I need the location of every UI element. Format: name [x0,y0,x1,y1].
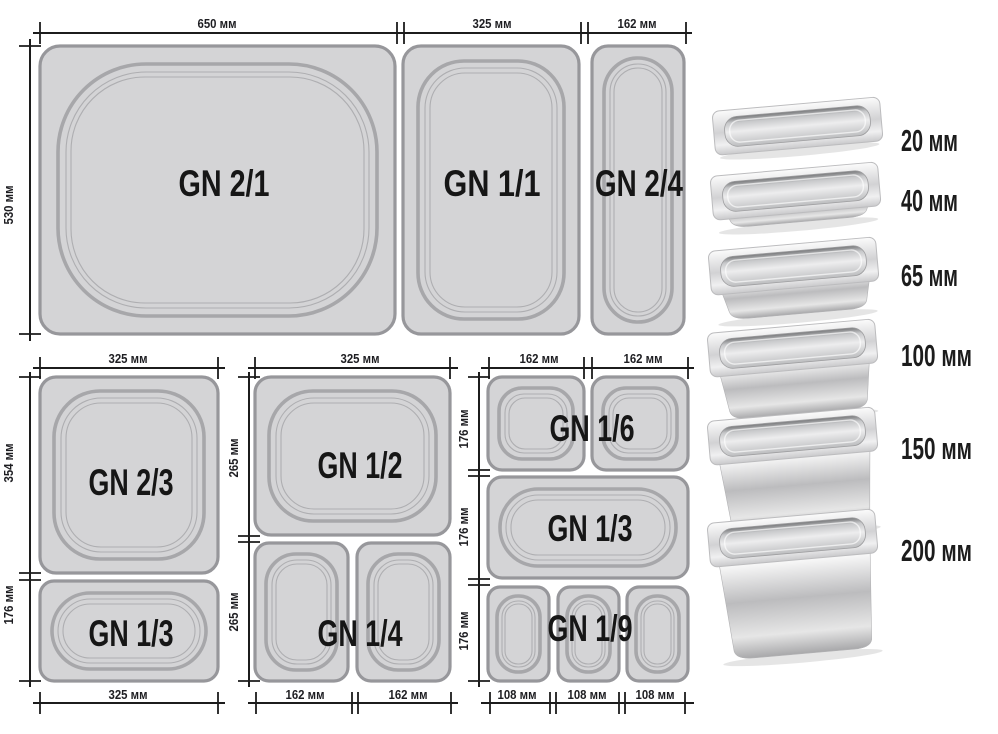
dim-label-325-bl-bottom: 325 мм [109,687,148,702]
pan-gn-2-1: GN 2/1 [40,46,395,334]
depth-label-40mm: 40 мм [901,183,958,218]
pan-gn-1-3-right: GN 1/3 [488,477,688,578]
depth-label-100mm: 100 мм [901,338,972,373]
dim-label-162-r-left: 162 мм [520,351,559,366]
dim-label-530: 530 мм [1,186,16,225]
pan-gn-1-9-a [488,587,549,681]
pan-gn-1-4-left [255,543,348,681]
pan-label-gn-2-4: GN 2/4 [595,163,683,204]
depth-label-200mm: 200 мм [901,533,972,568]
pan-gn-1-2: GN 1/2 [255,377,450,535]
dim-label-265-upper: 265 мм [226,439,241,478]
pan-label-gn-1-1: GN 1/1 [444,163,541,204]
dim-label-325-top: 325 мм [473,16,512,31]
dim-label-176-bl: 176 мм [1,586,16,625]
pan-photo-200mm [707,509,887,670]
dim-label-176-r2: 176 мм [456,508,471,547]
dim-label-108-c: 108 мм [636,687,675,702]
pan-label-gn-1-4: GN 1/4 [318,613,403,654]
pan-label-gn-1-3-left: GN 1/3 [89,613,174,654]
pan-label-gn-1-6: GN 1/6 [550,408,635,449]
dim-label-325-bl-top: 325 мм [109,351,148,366]
pan-gn-1-4-right [357,543,450,681]
dim-label-650: 650 мм [198,16,237,31]
dim-label-108-a: 108 мм [498,687,537,702]
dim-label-354: 354 мм [1,444,16,483]
depth-label-65mm: 65 мм [901,258,958,293]
pan-label-gn-2-1: GN 2/1 [179,163,270,204]
dim-label-176-r3: 176 мм [456,612,471,651]
gastronorm-sizes-diagram: GN 2/1 GN 1/1 GN 2/4 GN 2/3 GN 1/3 GN 1/… [0,0,998,734]
pan-label-gn-1-3-right: GN 1/3 [548,508,633,549]
dim-label-325-mid: 325 мм [341,351,380,366]
pan-gn-2-3: GN 2/3 [40,377,218,573]
diagram-canvas: GN 2/1 GN 1/1 GN 2/4 GN 2/3 GN 1/3 GN 1/… [0,0,998,734]
dim-label-162-top: 162 мм [618,16,657,31]
pan-label-gn-1-2: GN 1/2 [318,445,403,486]
pan-gn-1-3-left: GN 1/3 [40,581,218,681]
pan-label-gn-2-3: GN 2/3 [89,462,174,503]
dim-label-108-b: 108 мм [568,687,607,702]
pan-photo-65mm [708,237,882,330]
pan-label-gn-1-9: GN 1/9 [548,608,633,649]
depth-label-20mm: 20 мм [901,123,958,158]
dim-label-265-lower: 265 мм [226,593,241,632]
pan-gn-1-1: GN 1/1 [403,46,579,334]
pan-gn-2-4: GN 2/4 [592,46,684,334]
dim-label-162-mid-right: 162 мм [389,687,428,702]
dim-label-162-mid-left: 162 мм [286,687,325,702]
pan-gn-1-9-c [627,587,688,681]
dim-label-162-r-right: 162 мм [624,351,663,366]
dim-label-176-r1: 176 мм [456,410,471,449]
depth-label-150mm: 150 мм [901,431,972,466]
